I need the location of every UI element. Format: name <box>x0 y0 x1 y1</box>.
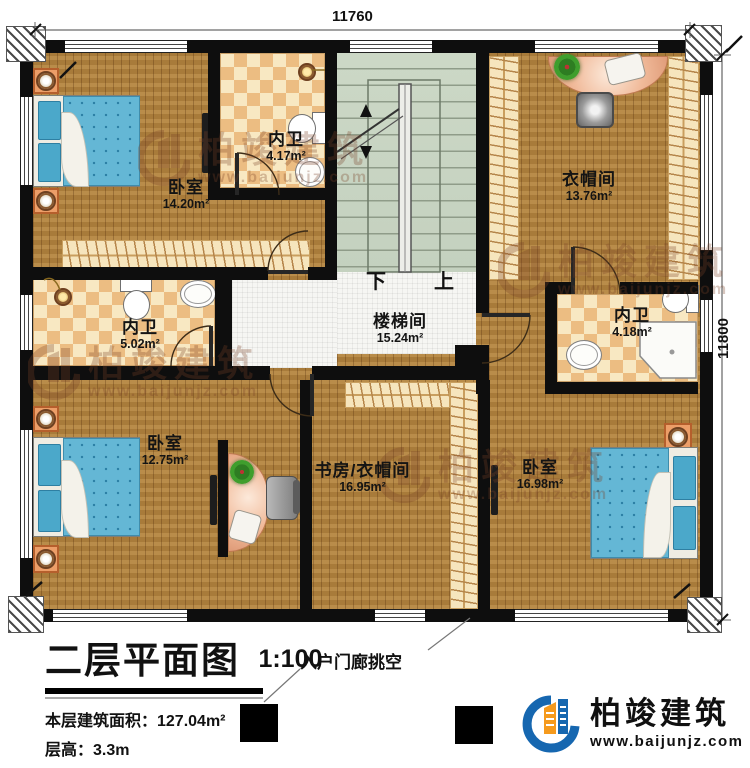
cloakroom-wardrobe-right <box>668 56 699 280</box>
stair-flight <box>337 53 476 272</box>
sink <box>180 280 216 308</box>
window <box>20 430 33 558</box>
wall <box>20 366 270 380</box>
window <box>375 609 425 622</box>
wall <box>308 267 337 280</box>
room-label-bath-2: 内卫 5.02m² <box>100 318 180 351</box>
brand-logo: 柏竣建筑 www.baijunjz.com <box>520 692 743 756</box>
ceiling-lamp-icon <box>298 63 316 81</box>
room-label-bath-1: 内卫 4.17m² <box>250 130 322 163</box>
wall <box>545 382 698 394</box>
room-label-study: 书房/衣帽间 16.95m² <box>285 461 440 494</box>
corner-pier <box>685 25 722 62</box>
window <box>700 300 713 352</box>
floor-area-text: 本层建筑面积：127.04m² <box>45 707 322 731</box>
porch-column <box>240 704 278 742</box>
stair-down-label: 下 <box>366 265 386 294</box>
room-name: 楼梯间 <box>350 312 450 331</box>
room-area: 4.17m² <box>250 149 322 163</box>
toilet-bowl <box>123 290 150 320</box>
room-name: 内卫 <box>100 318 180 337</box>
room-name: 书房/衣帽间 <box>285 461 440 480</box>
room-name: 卧室 <box>110 434 220 453</box>
lamp-icon <box>36 191 56 211</box>
floor-height-text: 层高：3.3m <box>45 736 322 760</box>
tv-icon <box>210 475 217 525</box>
plant-icon <box>230 460 254 484</box>
shower-head-icon <box>54 288 72 306</box>
wall <box>476 53 489 313</box>
wall <box>620 282 698 294</box>
room-area: 16.98m² <box>485 477 595 491</box>
room-area: 14.20m² <box>131 197 241 211</box>
window <box>535 40 658 53</box>
porch-column <box>455 706 493 744</box>
dimension-top: 11760 <box>332 8 373 25</box>
room-area: 15.24m² <box>350 331 450 345</box>
room-name: 内卫 <box>250 130 322 149</box>
bed-1 <box>33 95 140 187</box>
title-rule <box>45 688 263 694</box>
room-area: 16.95m² <box>285 480 440 494</box>
room-name: 衣帽间 <box>543 170 635 189</box>
dimension-right: 11800 <box>715 318 732 359</box>
study-wardrobe-right <box>450 382 478 609</box>
room-name: 卧室 <box>485 458 595 477</box>
room-label-bath-3: 内卫 4.18m² <box>592 306 672 339</box>
wall <box>300 380 312 609</box>
brand-logo-icon <box>520 692 582 756</box>
study-wardrobe-top <box>345 382 450 408</box>
lamp-icon <box>668 427 688 447</box>
room-area: 12.75m² <box>110 453 220 467</box>
room-name: 卧室 <box>131 178 241 197</box>
wall <box>312 366 476 380</box>
window <box>53 609 187 622</box>
room-area: 5.02m² <box>100 337 180 351</box>
room-label-bedroom-3: 卧室 16.98m² <box>485 458 595 491</box>
corner-pier <box>6 26 46 62</box>
wall <box>545 282 557 394</box>
window <box>350 40 432 53</box>
room-area: 4.18m² <box>592 325 672 339</box>
plant-icon <box>554 54 580 80</box>
cloakroom-wardrobe-left <box>489 56 519 280</box>
lamp-icon <box>36 71 56 91</box>
room-area: 13.76m² <box>543 189 635 203</box>
wall <box>455 345 489 368</box>
room-name: 内卫 <box>592 306 672 325</box>
floor-plan-page: 柏竣建筑 www.baijunjz.com 柏竣建筑 www.baijunjz.… <box>0 0 750 768</box>
porch-void-label: 入户门廊挑空 <box>300 648 402 673</box>
stair-up-label: 上 <box>434 265 454 294</box>
plan-title: 二层平面图 <box>45 630 240 684</box>
window <box>20 97 33 185</box>
title-rule-thin <box>45 697 263 699</box>
room-label-stairwell: 楼梯间 15.24m² <box>350 312 450 345</box>
bed-3 <box>590 447 698 559</box>
brand-url: www.baijunjz.com <box>590 733 743 750</box>
wall <box>33 267 268 280</box>
window <box>65 40 187 53</box>
brand-name: 柏竣建筑 <box>590 698 743 729</box>
room-label-cloakroom: 衣帽间 13.76m² <box>543 170 635 203</box>
room-label-bedroom-1: 卧室 14.20m² <box>131 178 241 211</box>
wall <box>478 380 490 609</box>
wall <box>325 53 337 272</box>
room-label-bedroom-2: 卧室 12.75m² <box>110 434 220 467</box>
hall-tile <box>232 280 337 368</box>
lamp-icon <box>36 549 56 569</box>
window <box>515 609 668 622</box>
title-block: 二层平面图 1:100 本层建筑面积：127.04m² 层高：3.3m <box>45 630 322 760</box>
wall <box>215 280 232 366</box>
vanity-chair <box>576 92 614 128</box>
sink <box>566 340 602 370</box>
corner-pier <box>687 597 722 633</box>
corner-pier <box>8 596 44 633</box>
lamp-icon <box>36 409 56 429</box>
window <box>700 95 713 250</box>
window <box>20 295 33 350</box>
